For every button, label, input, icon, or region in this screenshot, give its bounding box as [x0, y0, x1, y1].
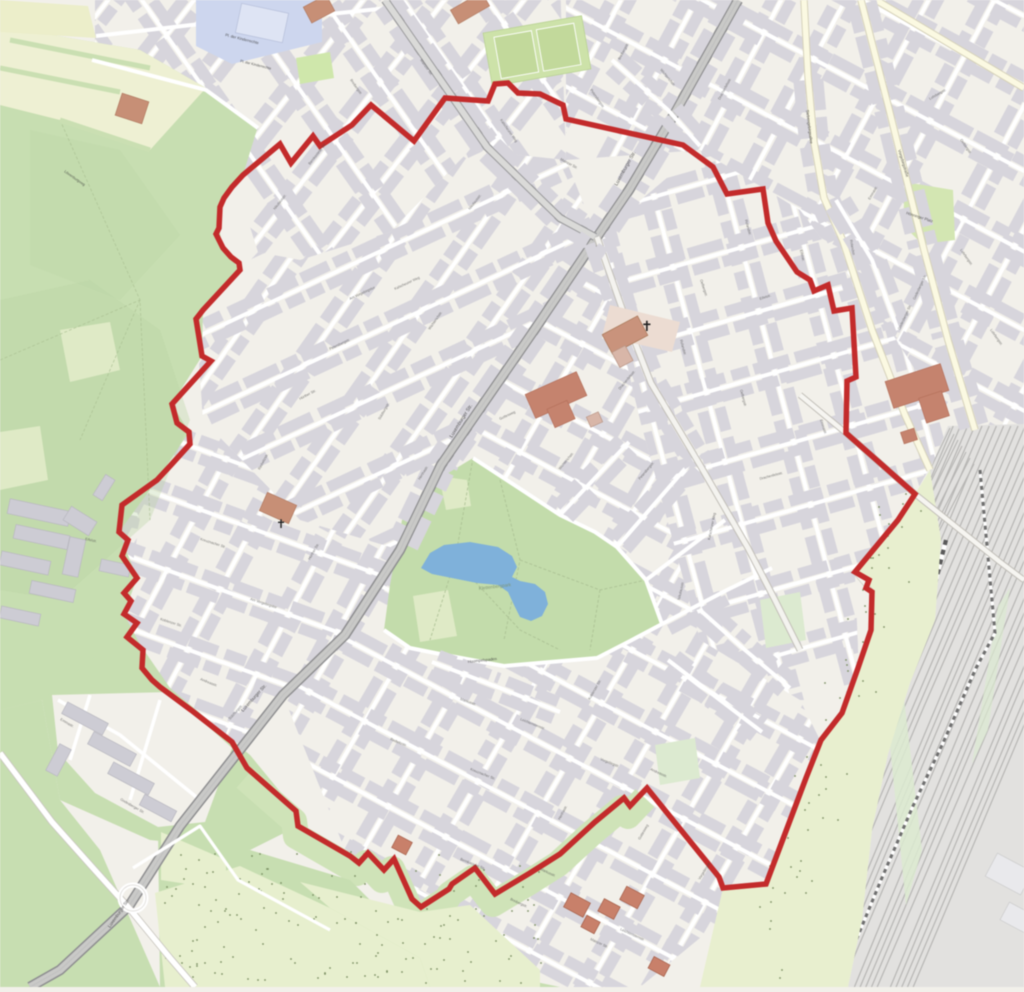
- svg-text:✝: ✝: [641, 318, 653, 334]
- svg-text:✝: ✝: [276, 517, 286, 531]
